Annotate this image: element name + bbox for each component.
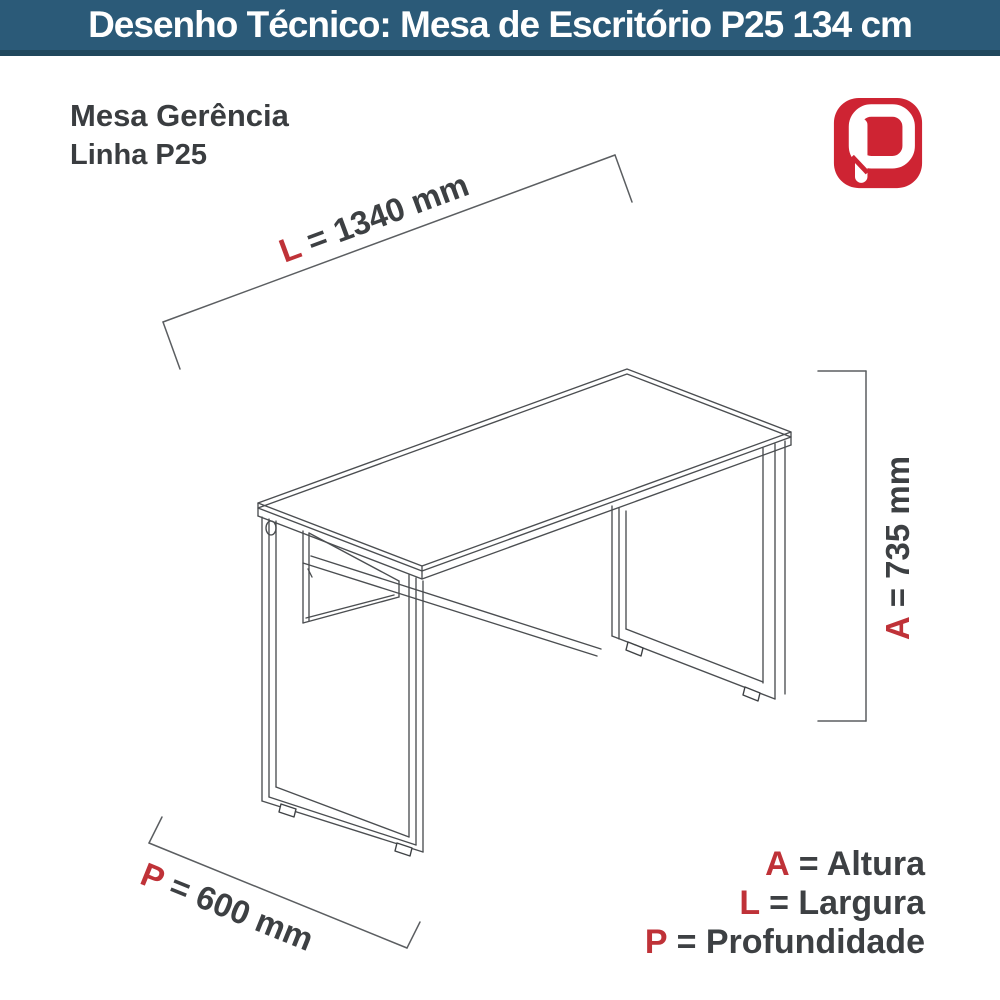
- cable-hook: [266, 521, 276, 535]
- underside-edges: [303, 556, 601, 656]
- legend-letter-a: A: [765, 845, 790, 883]
- left-leg-foot: [279, 804, 296, 817]
- legend-letter-l: L: [739, 884, 760, 922]
- legend-row-profundidade: P= Profundidade: [645, 923, 925, 962]
- legend: A= Altura L= Largura P= Profundidade: [645, 845, 925, 962]
- length-dimension-line: [163, 155, 632, 369]
- legend-letter-p: P: [645, 923, 668, 961]
- legend-text-profundidade: = Profundidade: [677, 923, 925, 961]
- side-panel: [303, 531, 399, 623]
- desk-top: [258, 369, 791, 579]
- height-dimension-label: A= 735 mm: [879, 456, 917, 640]
- legend-row-altura: A= Altura: [645, 845, 925, 884]
- right-leg: [612, 441, 785, 701]
- right-leg-foot: [626, 642, 643, 656]
- height-value: = 735 mm: [879, 456, 916, 607]
- left-leg: [262, 517, 423, 856]
- technical-drawing-page: Desenho Técnico: Mesa de Escritório P25 …: [0, 0, 1000, 1000]
- legend-text-altura: = Altura: [799, 845, 925, 883]
- left-leg-foot: [395, 843, 412, 856]
- legend-row-largura: L= Largura: [645, 884, 925, 923]
- height-dimension-line: [818, 371, 866, 721]
- legend-text-largura: = Largura: [769, 884, 925, 922]
- right-leg-foot: [743, 687, 760, 701]
- height-letter: A: [879, 616, 916, 640]
